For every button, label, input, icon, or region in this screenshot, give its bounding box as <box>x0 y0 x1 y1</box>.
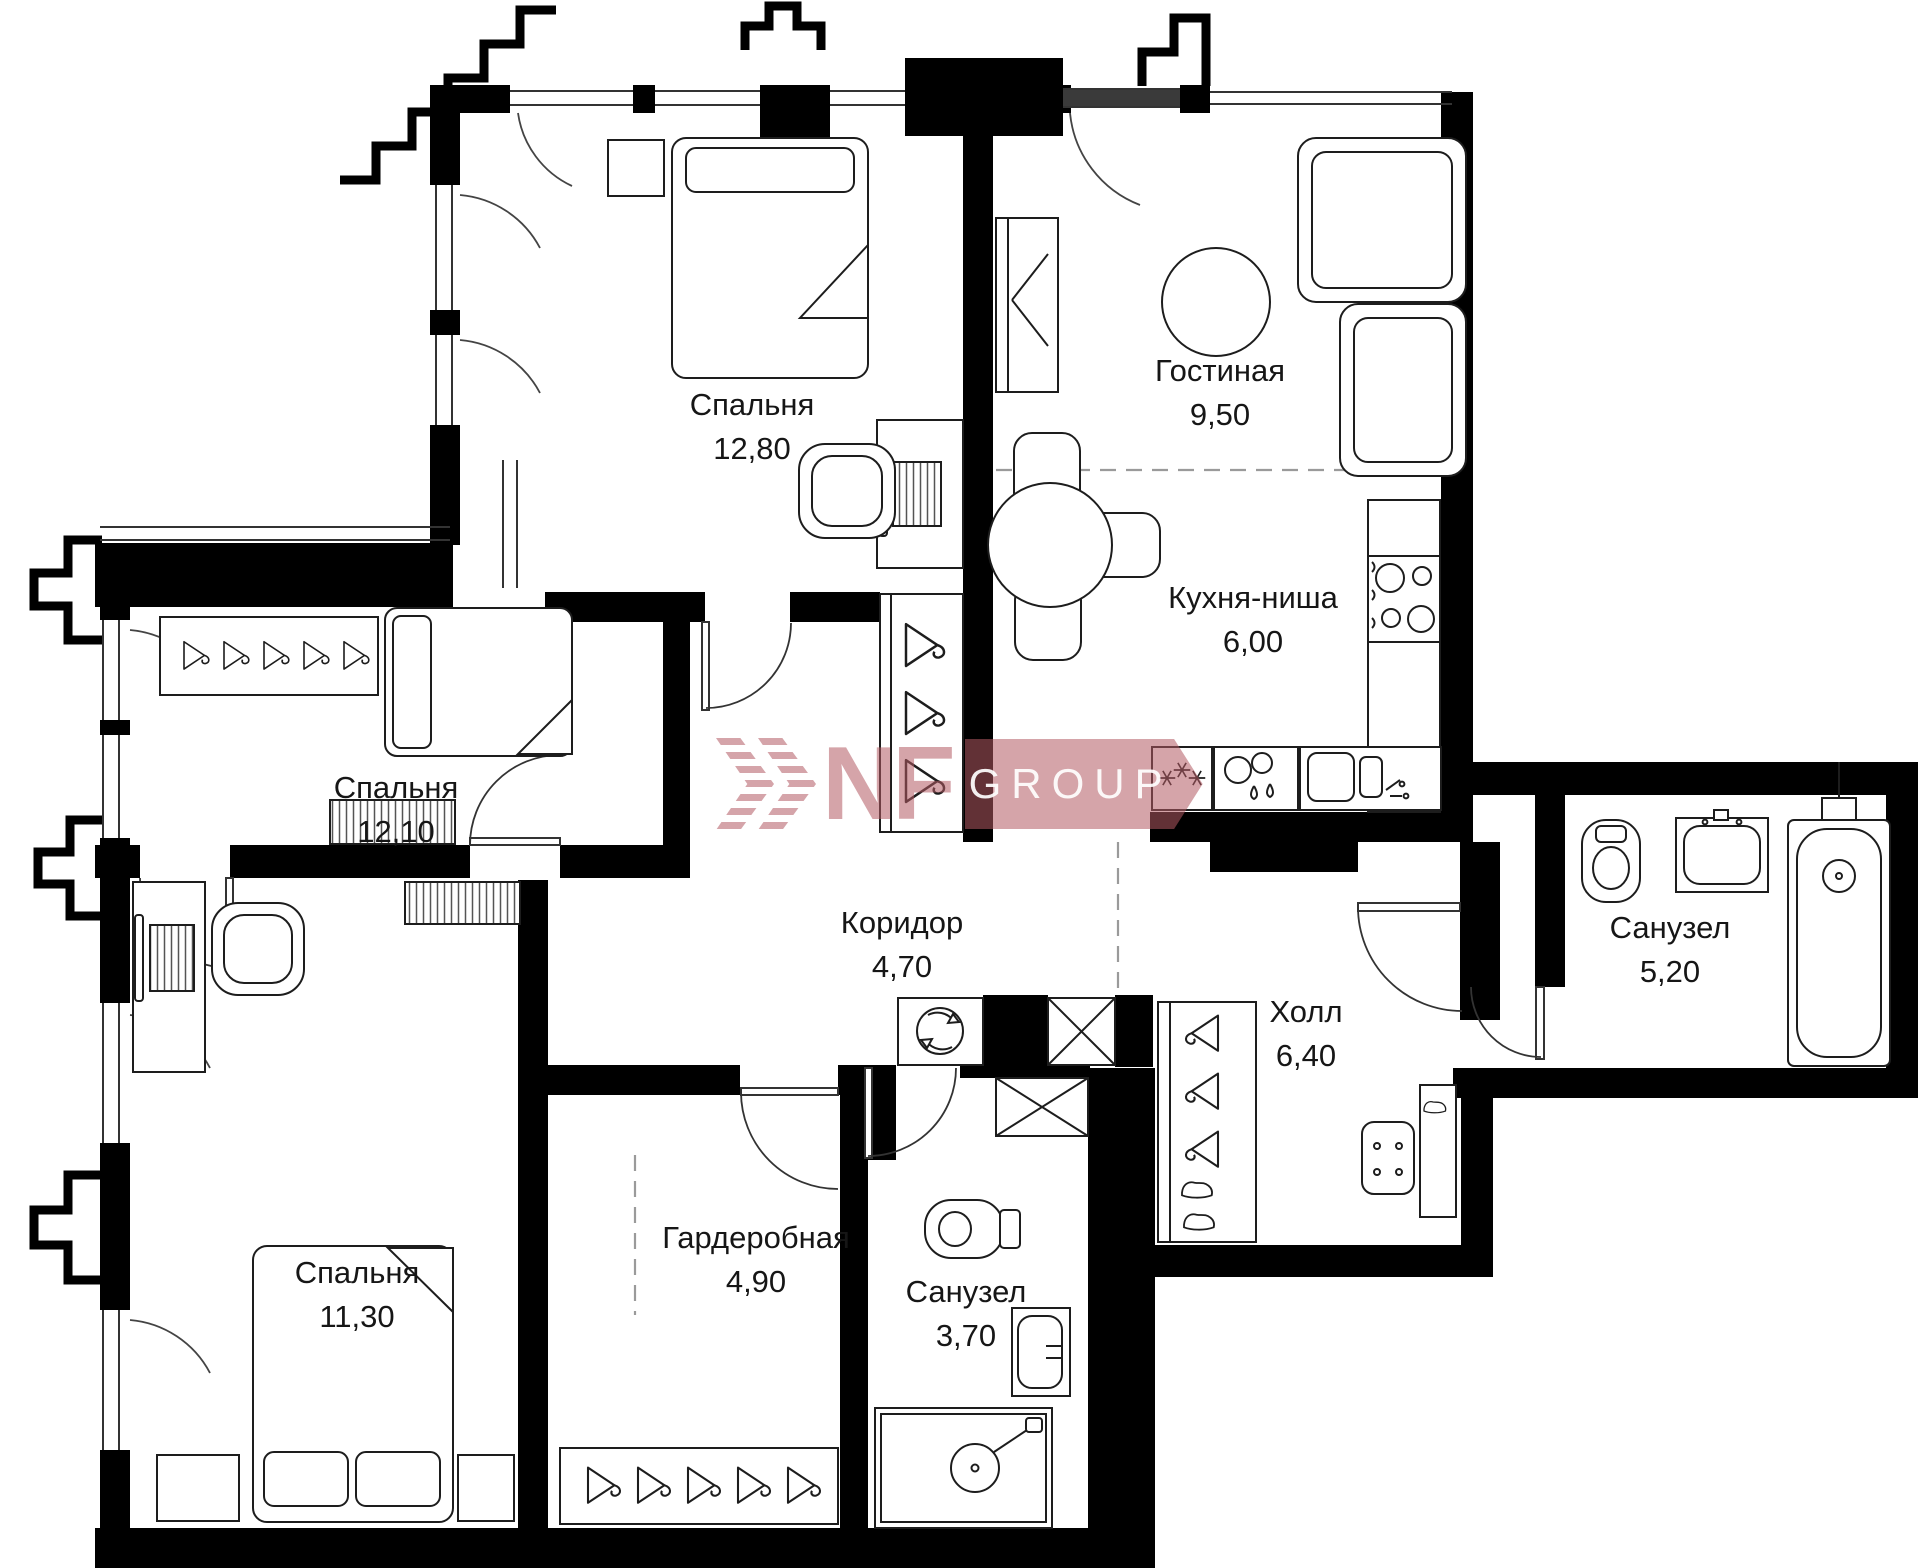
room-label-bedroom-bottom: Спальня11,30 <box>295 1251 420 1339</box>
room-label-bedroom-left: Спальня12,10 <box>334 766 459 854</box>
room-label-bathroom-bottom: Санузел3,70 <box>906 1270 1027 1358</box>
room-label-bedroom-top: Спальня12,80 <box>690 383 815 471</box>
watermark-nf-group: NF GROUP <box>716 736 1246 832</box>
watermark-group-box: GROUP <box>965 739 1203 829</box>
nf-logo-chevron-icon <box>716 738 774 830</box>
watermark-brand-text: NF <box>822 738 951 830</box>
room-label-bathroom-right: Санузел5,20 <box>1610 906 1731 994</box>
room-label-hall: Холл6,40 <box>1269 990 1342 1078</box>
room-label-wardrobe: Гардеробная4,90 <box>662 1216 850 1304</box>
room-label-living-room: Гостиная9,50 <box>1155 349 1285 437</box>
room-label-kitchen-niche: Кухня-ниша6,00 <box>1168 576 1338 664</box>
floorplan: Спальня12,80 Гостиная9,50 Кухня-ниша6,00… <box>0 0 1920 1568</box>
watermark-group-text: GROUP <box>969 760 1199 808</box>
nf-logo-icon <box>716 738 800 830</box>
room-label-corridor: Коридор4,70 <box>841 901 963 989</box>
